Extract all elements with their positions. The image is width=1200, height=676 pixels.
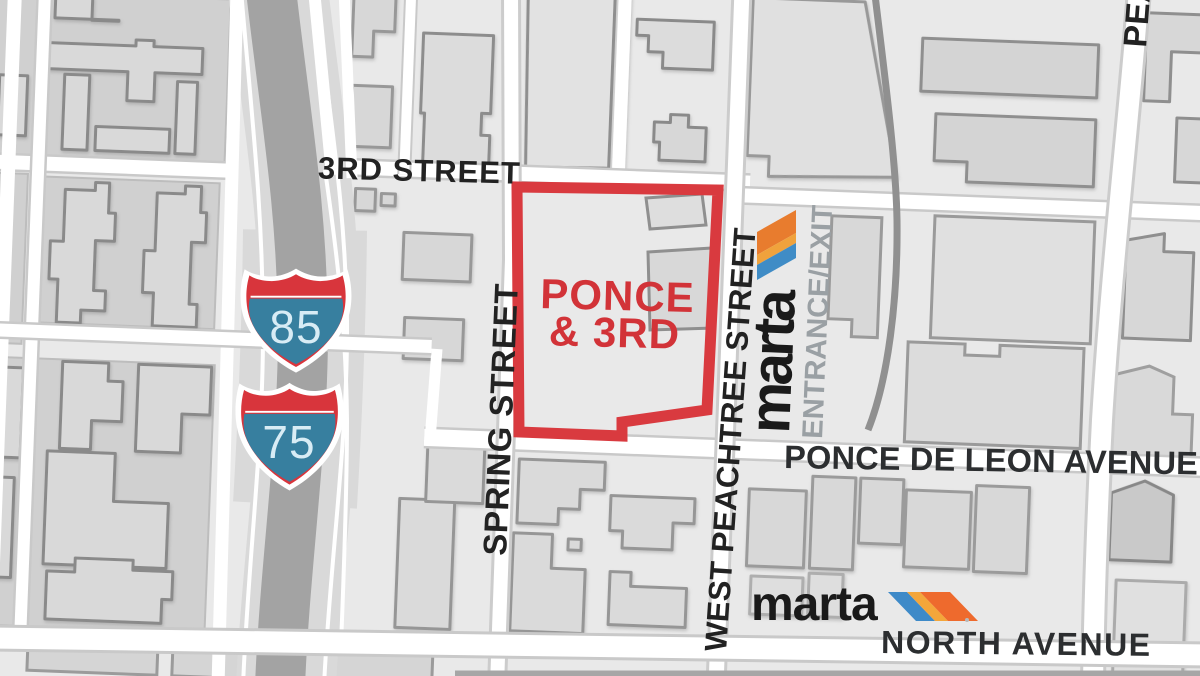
svg-text:marta: marta bbox=[751, 578, 878, 631]
svg-text:3RD STREET: 3RD STREET bbox=[318, 150, 522, 190]
svg-text:PONCE DE LEON AVENUE: PONCE DE LEON AVENUE bbox=[784, 439, 1198, 481]
svg-text:85: 85 bbox=[269, 301, 322, 353]
svg-text:& 3RD: & 3RD bbox=[548, 307, 680, 357]
svg-text:75: 75 bbox=[262, 416, 315, 468]
svg-text:NORTH AVENUE: NORTH AVENUE bbox=[881, 624, 1152, 663]
